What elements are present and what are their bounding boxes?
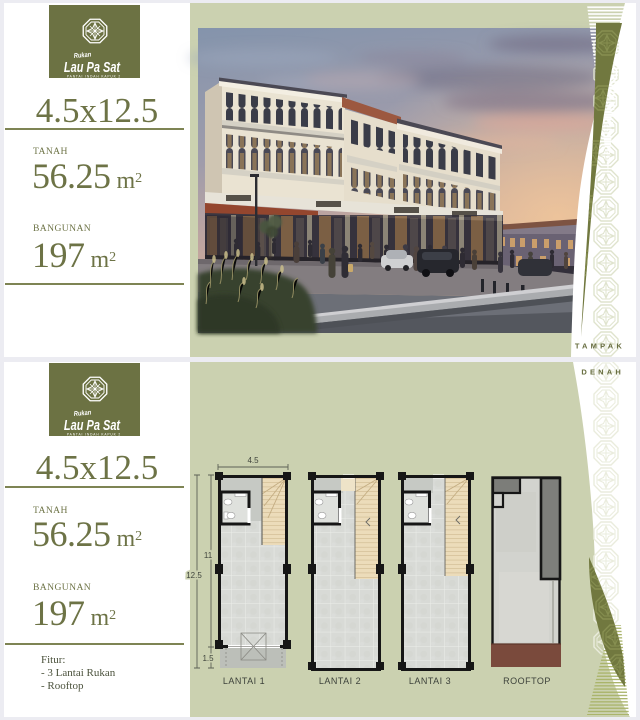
svg-text:PANTAI INDAH KAPUK 2: PANTAI INDAH KAPUK 2 bbox=[67, 75, 121, 79]
svg-text:1.5: 1.5 bbox=[202, 654, 214, 663]
svg-text:LANTAI 2: LANTAI 2 bbox=[319, 676, 361, 686]
svg-text:ROOFTOP: ROOFTOP bbox=[503, 676, 551, 686]
svg-text:12.5: 12.5 bbox=[186, 571, 202, 580]
svg-text:TAMPAK: TAMPAK bbox=[575, 342, 625, 351]
svg-text:LANTAI 3: LANTAI 3 bbox=[409, 676, 451, 686]
svg-text:DENAH: DENAH bbox=[581, 368, 624, 377]
svg-text:4.5: 4.5 bbox=[247, 456, 259, 465]
svg-text:PANTAI INDAH KAPUK 2: PANTAI INDAH KAPUK 2 bbox=[67, 433, 121, 437]
svg-text:11: 11 bbox=[204, 551, 213, 560]
svg-text:Lau Pa Sat: Lau Pa Sat bbox=[64, 417, 121, 434]
svg-text:Lau Pa Sat: Lau Pa Sat bbox=[64, 59, 121, 76]
svg-text:LANTAI 1: LANTAI 1 bbox=[223, 676, 265, 686]
